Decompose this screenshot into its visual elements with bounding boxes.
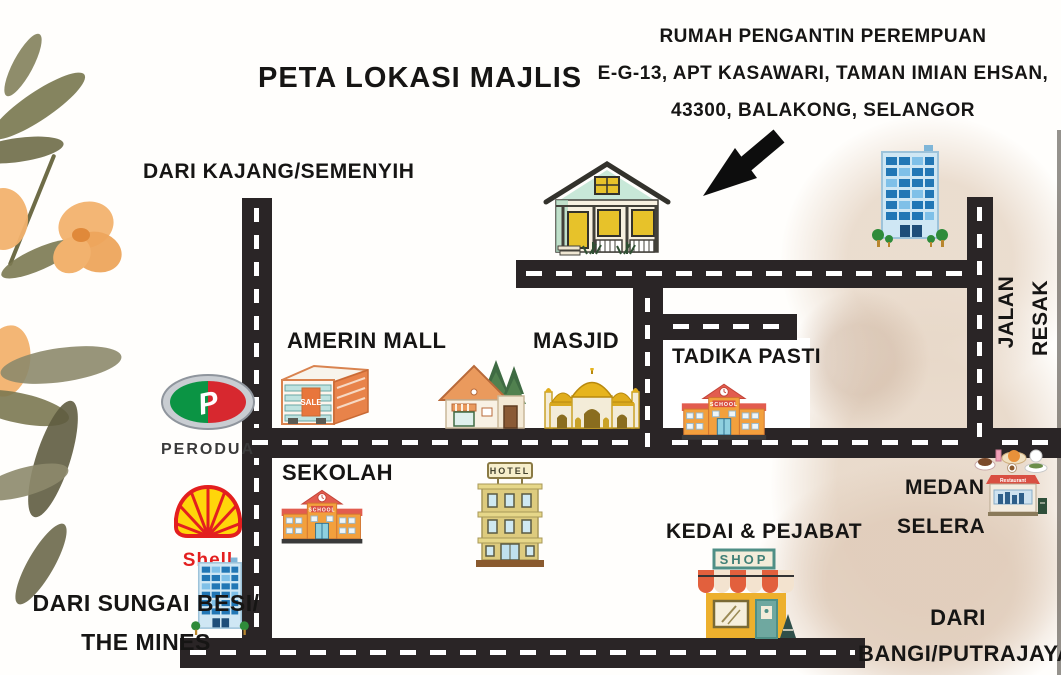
venue-house-icon xyxy=(538,150,676,258)
page-title: PETA LOKASI MAJLIS xyxy=(258,62,582,95)
amerin-mall-icon: SALE xyxy=(276,352,372,430)
address-line-2: E-G-13, APT KASAWARI, TAMAN IMIAN EHSAN, xyxy=(588,55,1058,92)
mall-sale-banner: SALE xyxy=(300,398,322,407)
direction-from-bangi-line1: DARI xyxy=(858,605,1058,631)
label-sekolah: SEKOLAH xyxy=(282,460,393,486)
road-center-dashes xyxy=(645,298,650,448)
direction-from-kajang: DARI KAJANG/SEMENYIH xyxy=(143,160,414,184)
shop-icon: SHOP xyxy=(690,548,802,640)
hotel-icon: HOTEL xyxy=(472,460,548,568)
direction-from-bangi-line2: BANGI/PUTRAJAYA xyxy=(858,641,1058,667)
school-sign: SCHOOL xyxy=(308,507,335,513)
direction-from-sungai-besi-line1: DARI SUNGAI BESI/ xyxy=(12,590,280,617)
cottage-icon xyxy=(438,352,530,432)
label-kedai-pejabat: KEDAI & PEJABAT xyxy=(666,520,862,544)
road-name-resak: RESAK xyxy=(1029,273,1053,363)
road-top-horizontal xyxy=(516,260,993,288)
tadika-school-icon: SCHOOL xyxy=(678,382,770,440)
perodua-logo: P PERODUA xyxy=(158,372,258,459)
shop-sign: SHOP xyxy=(720,552,769,567)
road-name-jalan: JALAN xyxy=(995,267,1019,357)
restaurant-sign: Restaurant xyxy=(1000,478,1026,484)
venue-pointer-arrow-icon xyxy=(695,128,785,200)
address-line-3: 43300, BALAKONG, SELANGOR xyxy=(588,92,1058,129)
label-medan-selera-line2: SELERA xyxy=(897,515,985,539)
sekolah-school-icon: SCHOOL xyxy=(278,488,366,544)
school-sign: SCHOOL xyxy=(710,402,738,408)
road-center-dashes xyxy=(643,324,787,329)
road-center-dashes xyxy=(977,207,982,448)
road-center-dashes xyxy=(526,271,983,276)
road-bottom-horizontal xyxy=(180,638,865,668)
label-medan-selera-line1: MEDAN xyxy=(905,476,985,500)
road-center-dashes xyxy=(190,650,855,655)
perodua-wordmark: PERODUA xyxy=(158,441,258,459)
masjid-icon xyxy=(542,368,642,430)
direction-from-sungai-besi-line2: THE MINES xyxy=(12,629,280,656)
address-line-1: RUMAH PENGANTIN PEREMPUAN xyxy=(588,18,1058,55)
hotel-sign: HOTEL xyxy=(490,466,531,476)
label-masjid: MASJID xyxy=(533,328,619,354)
location-map: PETA LOKASI MAJLIS RUMAH PENGANTIN PEREM… xyxy=(0,0,1061,675)
label-amerin-mall: AMERIN MALL xyxy=(287,328,446,354)
page-edge-shadow xyxy=(1057,130,1061,675)
office-building-icon xyxy=(872,143,948,251)
label-tadika-pasti: TADIKA PASTI xyxy=(672,345,821,369)
road-jalan-resak-vertical xyxy=(967,197,993,458)
